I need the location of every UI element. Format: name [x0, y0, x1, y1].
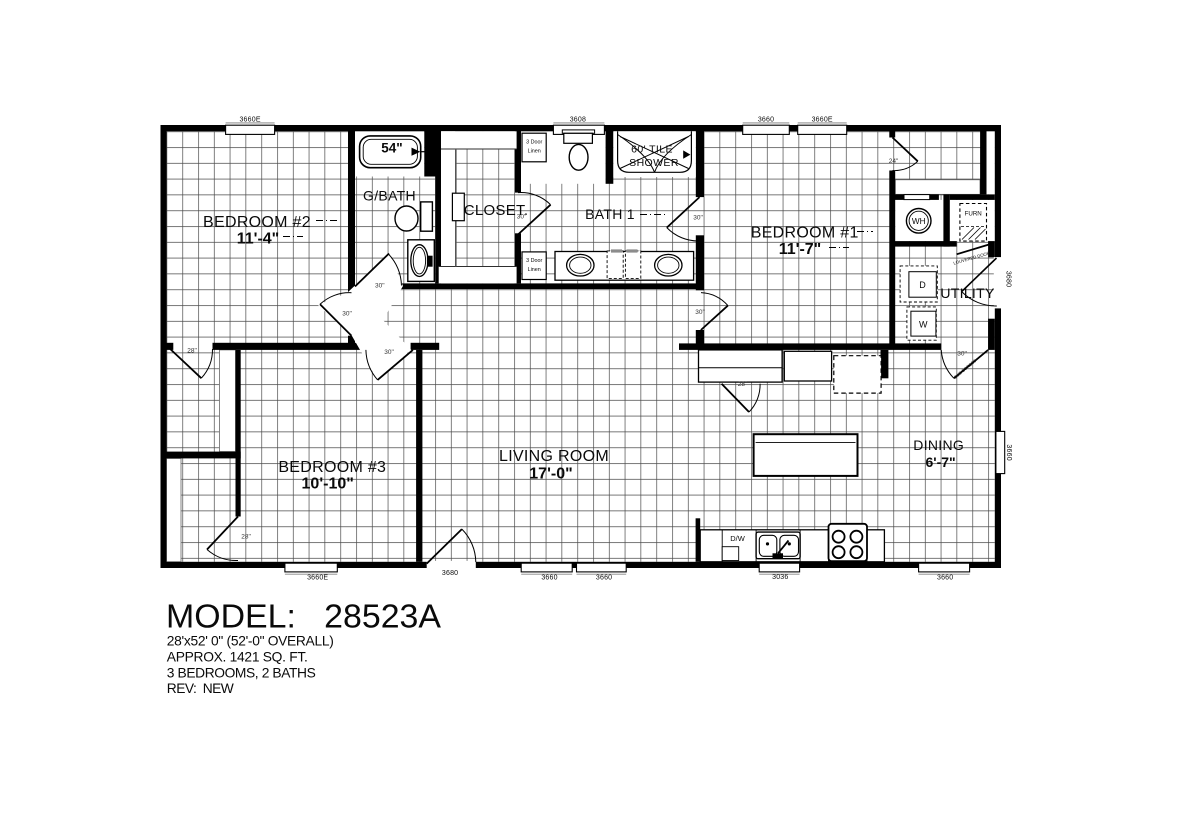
svg-text:UTILITY: UTILITY — [940, 285, 995, 301]
svg-text:3660E: 3660E — [812, 117, 833, 124]
svg-text:MODEL: 28523A: MODEL: 28523A — [166, 598, 441, 635]
svg-text:APPROX. 1421 SQ. FT.: APPROX. 1421 SQ. FT. — [167, 650, 308, 665]
svg-text:3660: 3660 — [937, 575, 953, 582]
svg-text:24": 24" — [889, 158, 899, 165]
svg-text:17'-0": 17'-0" — [529, 466, 572, 483]
svg-text:30": 30" — [693, 215, 703, 222]
svg-text:54": 54" — [381, 140, 402, 155]
svg-text:D: D — [919, 280, 926, 290]
svg-text:W: W — [919, 320, 928, 330]
svg-text:Linen: Linen — [528, 267, 541, 273]
svg-text:28": 28" — [241, 534, 251, 541]
svg-text:3660: 3660 — [541, 575, 557, 582]
svg-text:30": 30" — [342, 311, 352, 318]
svg-text:SHOWER: SHOWER — [629, 157, 679, 169]
svg-text:DINING: DINING — [913, 437, 964, 453]
svg-text:G/BATH: G/BATH — [363, 188, 416, 204]
svg-text:BATH 1: BATH 1 — [585, 206, 635, 222]
svg-text:30": 30" — [695, 309, 705, 316]
svg-text:WH: WH — [912, 217, 926, 226]
svg-text:3680: 3680 — [1005, 271, 1012, 287]
svg-text:3680: 3680 — [442, 570, 458, 577]
svg-text:3660E: 3660E — [307, 575, 328, 582]
svg-text:Linen: Linen — [528, 149, 541, 155]
svg-text:3660: 3660 — [758, 117, 774, 124]
svg-text:3 Door: 3 Door — [526, 140, 542, 146]
svg-text:3660: 3660 — [596, 575, 612, 582]
svg-text:BEDROOM #3: BEDROOM #3 — [278, 459, 386, 476]
svg-text:11'-7": 11'-7" — [779, 241, 822, 258]
svg-text:3 BEDROOMS, 2 BATHS: 3 BEDROOMS, 2 BATHS — [167, 666, 316, 681]
svg-text:60' TILE: 60' TILE — [631, 144, 673, 156]
svg-text:30": 30" — [957, 351, 967, 358]
svg-text:FURN: FURN — [965, 211, 982, 218]
svg-text:3036: 3036 — [772, 574, 788, 581]
svg-text:3660E: 3660E — [239, 117, 260, 124]
svg-text:BEDROOM #1: BEDROOM #1 — [751, 225, 859, 242]
svg-text:D/W: D/W — [730, 534, 746, 543]
svg-text:28'x52' 0" (52'-0" OVERALL): 28'x52' 0" (52'-0" OVERALL) — [167, 633, 334, 648]
svg-text:30": 30" — [517, 214, 527, 221]
svg-text:3608: 3608 — [570, 117, 586, 124]
svg-text:10'-10": 10'-10" — [302, 475, 354, 492]
svg-text:REV: NEW: REV: NEW — [167, 681, 234, 696]
svg-text:30": 30" — [375, 283, 385, 290]
svg-text:BEDROOM #2: BEDROOM #2 — [203, 214, 311, 231]
svg-text:11'-4": 11'-4" — [237, 231, 280, 248]
svg-text:30": 30" — [384, 349, 394, 356]
svg-text:6'-7": 6'-7" — [925, 454, 955, 470]
svg-text:3660: 3660 — [1005, 444, 1012, 460]
svg-text:3 Door: 3 Door — [526, 258, 542, 264]
svg-text:28": 28" — [738, 381, 748, 388]
svg-text:28": 28" — [187, 348, 197, 355]
svg-text:LIVING ROOM: LIVING ROOM — [499, 448, 609, 465]
